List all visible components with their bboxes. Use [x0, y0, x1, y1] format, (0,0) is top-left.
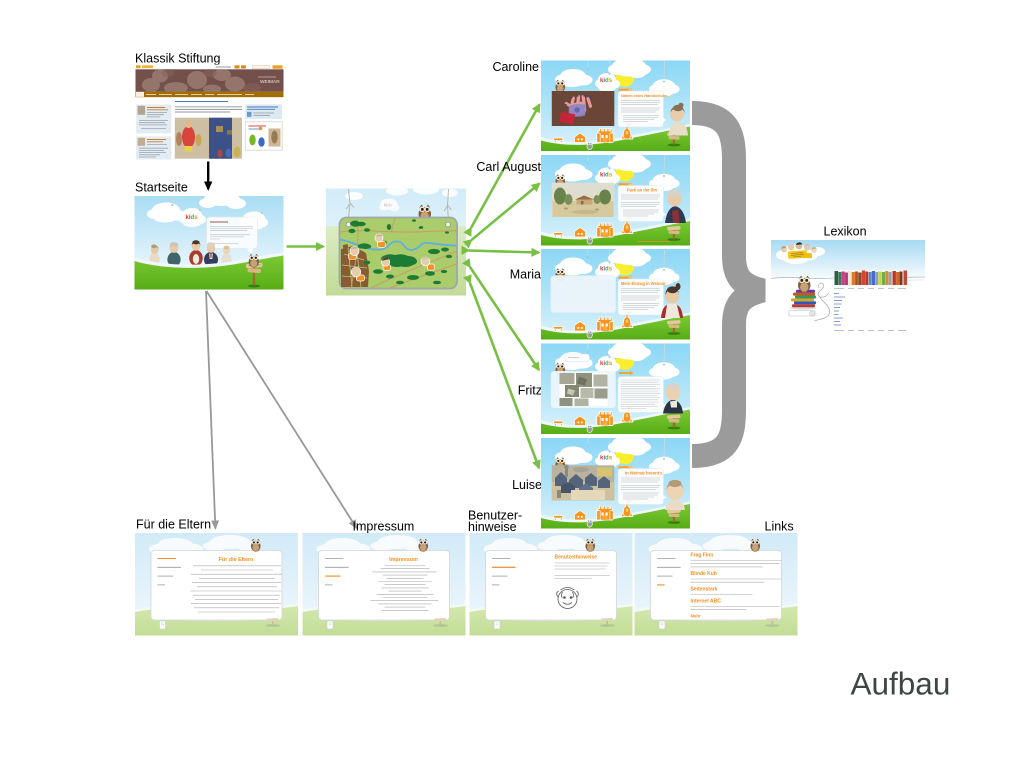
svg-text:Startseite: Startseite: [135, 181, 188, 195]
svg-text:Mein Einzug in Weimar: Mein Einzug in Weimar: [621, 281, 666, 286]
svg-text:Caroline: Caroline: [492, 60, 539, 74]
svg-text:Nähen eines Handschuhs: Nähen eines Handschuhs: [621, 94, 667, 98]
svg-text:Klassik Stiftung: Klassik Stiftung: [135, 52, 221, 66]
svg-text:Maria: Maria: [510, 268, 541, 282]
svg-text:In Weimar brennt's: In Weimar brennt's: [625, 471, 663, 476]
svg-text:Fritz: Fritz: [518, 384, 542, 398]
svg-text:Lexikon: Lexikon: [824, 225, 867, 239]
svg-text:Für die Eltern: Für die Eltern: [136, 518, 211, 532]
svg-text:Frag Finn: Frag Finn: [691, 553, 714, 559]
svg-text:hinweise: hinweise: [468, 520, 517, 534]
svg-text:Mehr: Mehr: [691, 614, 701, 619]
svg-text:Blinde Kuh: Blinde Kuh: [691, 571, 717, 577]
svg-text:Aufbau: Aufbau: [851, 666, 951, 702]
svg-text:Impressum: Impressum: [353, 520, 415, 534]
svg-text:Carl August: Carl August: [476, 160, 541, 174]
svg-text:Links: Links: [765, 520, 794, 534]
svg-text:kids: kids: [384, 203, 393, 208]
svg-text:Impressum: Impressum: [389, 557, 418, 563]
svg-text:Luise: Luise: [512, 478, 542, 492]
svg-text:Internet ABC: Internet ABC: [691, 599, 722, 605]
svg-text:Park an der Ilm: Park an der Ilm: [627, 188, 657, 193]
svg-text:Benutzerhinweise: Benutzerhinweise: [555, 555, 598, 561]
svg-text:kids: kids: [186, 215, 199, 221]
svg-text:Seitenstark: Seitenstark: [691, 587, 718, 593]
svg-text:Für die Eltern: Für die Eltern: [219, 557, 254, 563]
svg-text:WEIMAR: WEIMAR: [260, 79, 280, 85]
